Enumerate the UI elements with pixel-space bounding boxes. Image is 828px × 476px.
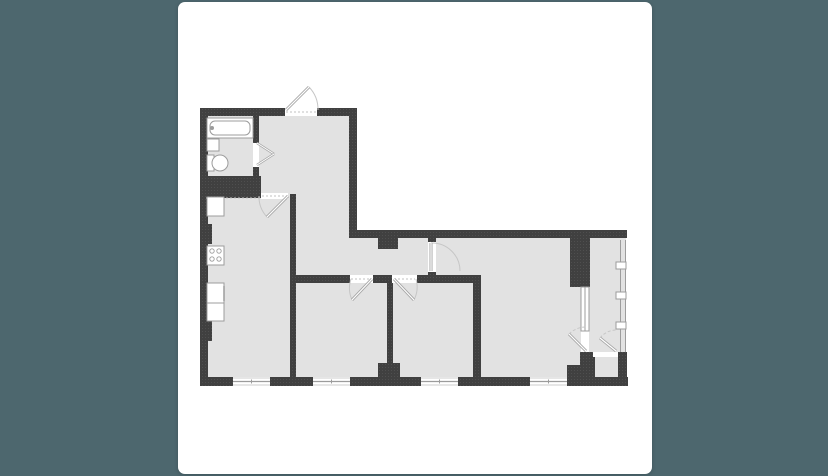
stove	[207, 246, 224, 265]
wall-segment	[378, 363, 400, 377]
glazing-mullion	[616, 292, 626, 299]
wall-segment	[296, 275, 350, 283]
toilet	[207, 155, 228, 171]
wall-segment	[349, 230, 627, 238]
wall-segment	[200, 108, 285, 116]
wall-segment	[270, 377, 313, 386]
wall-segment	[428, 272, 436, 283]
counter-unit	[207, 197, 224, 216]
glazing-mullion	[616, 322, 626, 329]
room-floor	[204, 112, 626, 382]
wall-segment	[200, 224, 212, 244]
entrance-door	[286, 87, 318, 110]
wall-segment	[458, 377, 530, 386]
counter-unit	[207, 283, 224, 303]
wall-segment	[200, 377, 233, 386]
bathroom-sink	[207, 139, 219, 151]
wall-segment	[428, 234, 436, 242]
wall-segment	[253, 116, 259, 143]
wall-segment	[349, 108, 357, 238]
balcony-window	[581, 287, 589, 331]
wall-segment	[417, 275, 480, 283]
floor-plan-drawing	[178, 2, 652, 474]
wall-segment	[378, 238, 398, 249]
floor-plan-card	[178, 2, 652, 474]
glazing-mullion	[616, 262, 626, 269]
window	[530, 377, 567, 386]
wall-segment	[350, 377, 421, 386]
kitchen-counter	[207, 197, 224, 321]
wall-segment	[473, 275, 481, 377]
window	[421, 377, 458, 386]
window	[233, 377, 270, 386]
wall-segment	[200, 321, 212, 341]
wall-segment	[570, 238, 590, 287]
wall-segment	[373, 275, 392, 283]
door-swing-arc	[309, 87, 318, 110]
wall-segment	[567, 377, 628, 386]
wall-segment	[290, 194, 296, 377]
counter-unit	[207, 303, 224, 321]
bathtub	[207, 118, 253, 138]
door-opening	[593, 352, 618, 357]
door-opening	[285, 108, 317, 116]
tub-faucet	[210, 126, 214, 130]
vent-shaft	[204, 176, 261, 198]
wall-segment	[387, 283, 393, 363]
window	[313, 377, 350, 386]
app-background	[0, 0, 828, 476]
